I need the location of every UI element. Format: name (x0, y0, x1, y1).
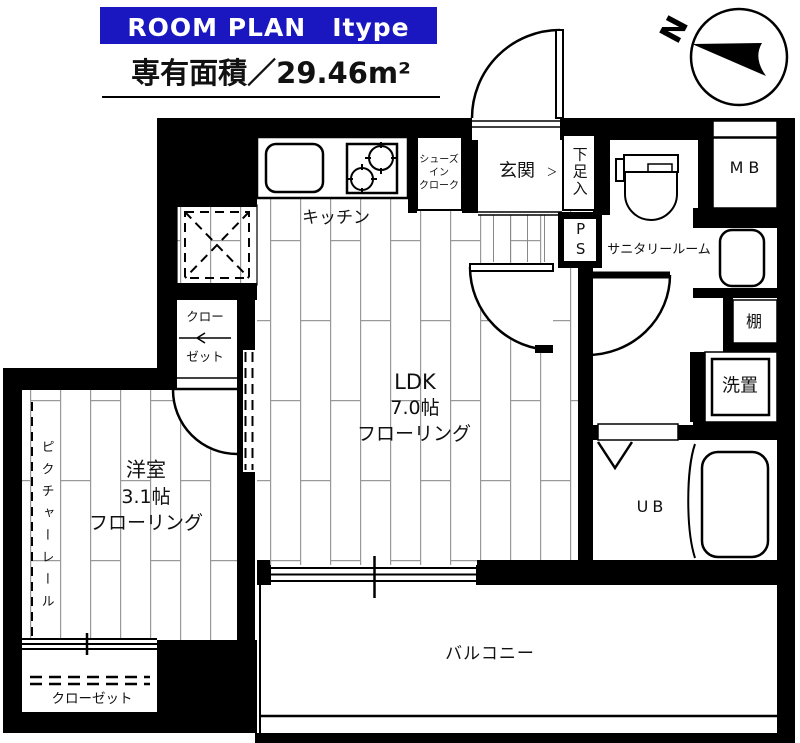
laundry-label: 洗置 (722, 377, 758, 398)
ldk-floor: フローリング (357, 424, 471, 446)
closet-upper-label-2: ゼット (186, 350, 224, 364)
meter-box-label: MB (730, 159, 765, 177)
sanitary-door (587, 275, 670, 355)
shoe-cloak-label-2: イン (429, 167, 449, 179)
kitchen-counter (257, 137, 408, 198)
entrance-tile (478, 215, 562, 262)
closet-lower-label: クローゼット (52, 692, 133, 708)
shoe-cloak-label-3: クローク (419, 180, 459, 192)
sanitary-label: サニタリールーム (607, 244, 711, 259)
bath-door-panel (598, 424, 678, 440)
western-room-floor: フローリング (89, 513, 203, 535)
toilet (616, 155, 678, 220)
shoe-box-label: 下足入 (570, 147, 587, 198)
pipe-space-label: PS (571, 220, 588, 260)
balcony-label: バルコニー (445, 645, 535, 665)
unit-bath-label: UB (637, 498, 668, 516)
compass-north-label: N (653, 10, 696, 49)
entrance-arrow: ＞ (547, 167, 558, 180)
plan-title: ROOM PLAN Itype (100, 7, 437, 44)
bathtub (702, 452, 768, 557)
compass: N (653, 9, 787, 105)
floor-plan: N ROOM PLAN Itype 専有面積／29.46m² キッチン シューズ… (0, 0, 800, 743)
folding-door-icon (598, 442, 632, 468)
closet-upper-label-1: クロー (186, 310, 224, 324)
western-room-name: 洋室 (126, 459, 166, 482)
kitchen-label: キッチン (302, 209, 370, 229)
shelf-label: 棚 (746, 313, 762, 331)
entrance-label: 玄関 (499, 162, 535, 183)
mb-vent (713, 121, 777, 137)
ldk-size: 7.0帖 (390, 398, 439, 420)
ldk-name: LDK (394, 370, 436, 394)
picture-rail-label: ピクチャーレール (38, 440, 53, 616)
bath-divider (688, 444, 695, 558)
area-label: 専有面積／29.46m² (102, 50, 440, 92)
compass-arrow-icon (692, 43, 766, 76)
wash-basin (720, 230, 764, 286)
western-room-size: 3.1帖 (121, 487, 170, 509)
entrance-door (472, 30, 563, 118)
area-underline (102, 96, 440, 98)
shoe-cloak-label-1: シューズ (419, 154, 459, 166)
closet-pipe (30, 677, 150, 684)
kitchen-sink (266, 144, 323, 192)
hanger-pipe-icon (179, 333, 231, 343)
